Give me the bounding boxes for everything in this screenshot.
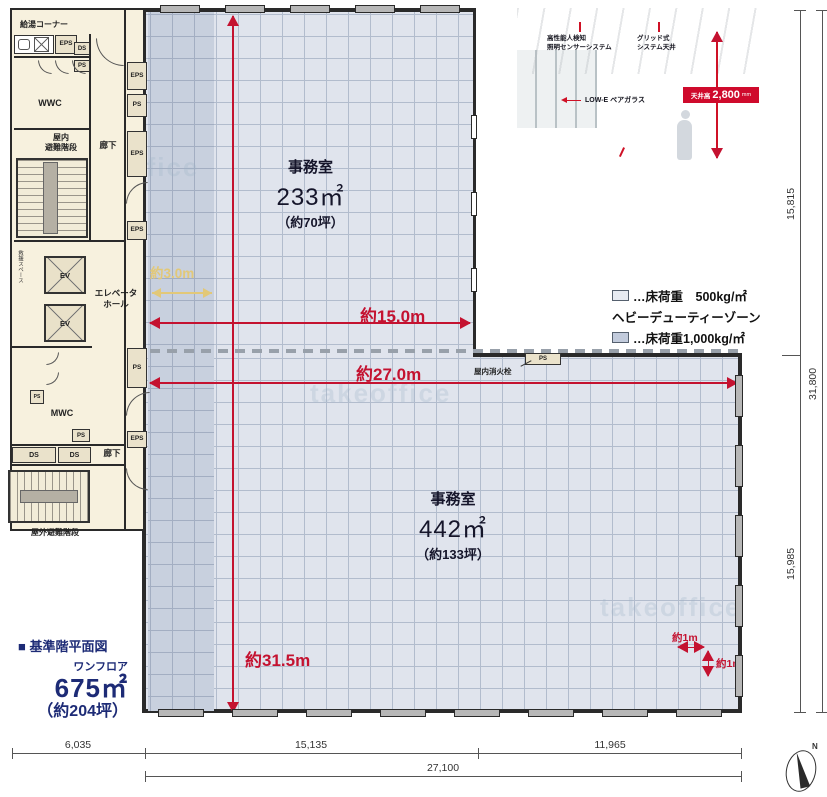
interior-photo-inset: 天井高 2,800 mm 高性能人検知照明センサーシステム グリッド式システム天… — [517, 8, 760, 170]
dim-zone-width-arrow — [152, 292, 212, 294]
person-silhouette — [677, 120, 692, 160]
dim-lower-width-arrow — [150, 382, 737, 384]
corridor-lower-label: 廊下 — [98, 448, 126, 459]
indoor-stairs-label: 屋内避難階段 — [34, 133, 88, 153]
window-gap-upper-right — [471, 192, 477, 216]
legend-heavy-title: ヘビーデューティーゾーン — [612, 307, 761, 326]
window-mullion-top — [420, 5, 460, 13]
rescue-space-label: 救援スペース — [13, 250, 24, 348]
kitchen-corner-label: 給湯コーナー — [20, 20, 112, 30]
ceiling-height-unit: mm — [742, 92, 751, 98]
window-mullion-top — [290, 5, 330, 13]
ps-shaft: PS — [127, 348, 147, 388]
zone-divider-dashed-line — [150, 349, 742, 353]
right-dim-tick — [794, 712, 806, 713]
bottom-dim-line-2 — [145, 776, 741, 777]
right-dim-tick — [794, 10, 806, 11]
ceiling-height-value: 2,800 — [712, 89, 740, 101]
stairs-landing — [43, 162, 58, 234]
window-gap-upper-right — [471, 115, 477, 139]
wall — [12, 464, 125, 466]
elevator-1: EV — [44, 256, 86, 294]
right-dim-line-outer — [822, 10, 823, 713]
ceiling-height-label: 天井高 — [691, 90, 711, 100]
fire-hydrant-label: 屋内消火栓 — [474, 366, 534, 377]
wall — [12, 444, 125, 446]
bottom-dim-tick — [145, 748, 146, 759]
dim-upper-width-arrow — [150, 322, 470, 324]
grid-ceiling-tick — [658, 22, 660, 32]
plan-title: ■ 基準階平面図 — [18, 636, 138, 655]
ceiling-height-badge: 天井高 2,800 mm — [683, 87, 759, 103]
ps-shaft: PS — [127, 94, 147, 117]
wall — [14, 240, 125, 242]
window-mullion-bottom — [380, 709, 426, 717]
dim-depth-label: 約31.5m — [245, 646, 310, 671]
dim-depth-arrow — [232, 16, 234, 712]
dim-grid-h-arrow — [708, 651, 709, 676]
ps-shaft: PS — [72, 429, 90, 442]
wwc-label: WWC — [28, 98, 72, 109]
window-gap-upper-right — [471, 268, 477, 292]
bottom-dim-line-1 — [12, 753, 741, 754]
ps-shaft: PS — [30, 390, 44, 404]
wall — [14, 128, 90, 130]
window-mullion-bottom — [602, 709, 648, 717]
fire-hydrant-ps-chip: PS — [525, 353, 561, 365]
bottom-dim-mid: 15,135 — [271, 739, 351, 751]
ds-shaft: DS — [74, 42, 90, 55]
elevator-hall-label: エレベータホール — [92, 288, 140, 309]
window-mullion-top — [225, 5, 265, 13]
window-mullion-bottom — [158, 709, 204, 717]
window-mullion-right — [735, 585, 743, 627]
compass: N — [782, 742, 826, 796]
ds-shaft: DS — [58, 447, 91, 463]
right-dim-total: 31,800 — [807, 328, 819, 400]
dim-zone-width-label: 約3.0m — [150, 262, 194, 282]
bottom-dim-tick — [145, 771, 146, 782]
floor-load-legend: …床荷重 500kg/㎡ ヘビーデューティーゾーン …床荷重1,000kg/㎡ — [612, 286, 812, 347]
right-dim-bottom: 15,985 — [785, 508, 797, 580]
right-dim-line-inner — [800, 10, 801, 713]
mwc-label: MWC — [42, 408, 82, 419]
room-area: 442㎡ — [368, 509, 538, 544]
ds-shaft: DS — [12, 447, 56, 463]
bottom-dim-total: 27,100 — [403, 762, 483, 774]
window-mullion-right — [735, 515, 743, 557]
legend-heavy-label: …床荷重1,000kg/㎡ — [633, 328, 745, 347]
window-mullion-bottom — [306, 709, 352, 717]
eps-shaft: EPS — [127, 431, 147, 448]
outdoor-stairs-label: 屋外避難階段 — [20, 528, 90, 538]
eps-shaft: EPS — [127, 62, 147, 90]
right-dim-tick — [816, 712, 827, 713]
room-upper-label: 事務室 233㎡ （約70坪） — [228, 156, 393, 231]
glass-note: LOW-E ペアガラス — [585, 96, 645, 105]
watermark: takeoffice — [600, 592, 741, 623]
kitchen-hatch — [34, 37, 49, 52]
elevator-2: EV — [44, 304, 86, 342]
wall — [14, 56, 90, 58]
room-name: 事務室 — [228, 156, 393, 177]
window-mullion-bottom — [676, 709, 722, 717]
right-dim-top: 15,815 — [785, 148, 797, 220]
wall-lower-top — [473, 353, 742, 357]
eps-shaft: EPS — [127, 221, 147, 240]
corridor-upper-label: 廊下 — [94, 140, 122, 151]
bottom-dim-right: 11,965 — [570, 739, 650, 751]
heavy-duty-zone — [148, 12, 214, 711]
bottom-dim-tick — [12, 748, 13, 759]
stairs-landing — [20, 490, 78, 503]
bottom-dim-tick — [741, 748, 742, 759]
sensor-tick — [579, 22, 581, 32]
room-name: 事務室 — [368, 488, 538, 509]
glass-arrow — [565, 100, 581, 101]
grid-ceiling-note: グリッド式システム天井 — [637, 35, 676, 53]
legend-swatch-light — [612, 290, 629, 301]
room-area: 233㎡ — [228, 177, 393, 212]
window-mullion-right — [735, 655, 743, 697]
total-tsubo: （約204坪） — [10, 697, 128, 721]
sensor-note: 高性能人検知照明センサーシステム — [547, 35, 612, 53]
person-head — [681, 110, 690, 119]
glass-arrowhead — [561, 97, 567, 103]
kitchen-sink — [18, 39, 30, 50]
room-lower-label: 事務室 442㎡ （約133坪） — [368, 488, 538, 563]
window-mullion-bottom — [232, 709, 278, 717]
window-mullion-right — [735, 375, 743, 417]
window-mullion-right — [735, 445, 743, 487]
dim-grid-w-arrow — [678, 647, 704, 648]
wall — [12, 346, 92, 348]
right-dim-tick — [782, 355, 800, 356]
right-dim-tick — [816, 10, 827, 11]
bottom-dim-tick — [741, 771, 742, 782]
window-mullion-top — [160, 5, 200, 13]
bottom-dim-tick — [478, 748, 479, 759]
eps-shaft: EPS — [127, 131, 147, 177]
floor-plan-canvas: takeoffice takeoffice takeoffice 給湯コーナー … — [0, 0, 827, 797]
window-mullion-bottom — [454, 709, 500, 717]
legend-swatch-heavy — [612, 332, 629, 343]
window-mullion-bottom — [528, 709, 574, 717]
room-tsubo: （約133坪） — [368, 544, 538, 563]
compass-north-label: N — [812, 742, 818, 751]
room-tsubo: （約70坪） — [228, 212, 393, 231]
legend-light-label: …床荷重 500kg/㎡ — [633, 286, 747, 305]
window-mullion-top — [355, 5, 395, 13]
bottom-dim-left: 6,035 — [38, 739, 118, 751]
